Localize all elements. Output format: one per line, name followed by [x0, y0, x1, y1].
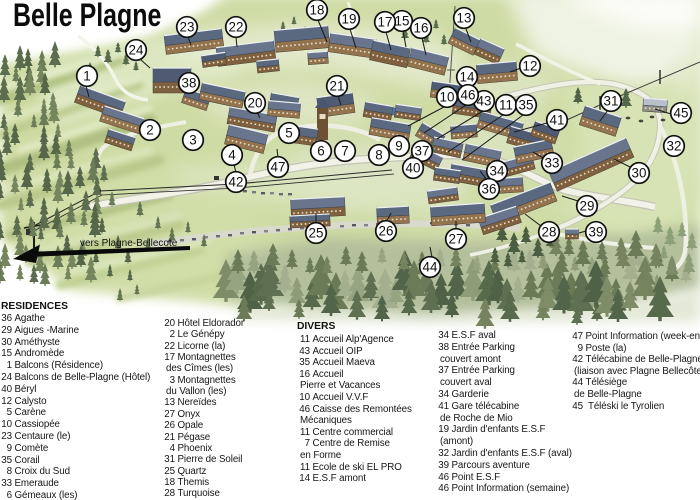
- svg-text:6: 6: [317, 144, 324, 159]
- svg-text:15: 15: [395, 14, 410, 29]
- svg-text:10: 10: [440, 90, 455, 105]
- svg-text:11: 11: [499, 98, 513, 113]
- svg-text:44: 44: [423, 260, 438, 275]
- svg-text:20: 20: [248, 96, 263, 111]
- svg-text:4: 4: [228, 148, 236, 163]
- svg-text:12: 12: [523, 59, 538, 74]
- svg-text:35: 35: [519, 98, 534, 113]
- svg-text:23: 23: [180, 20, 195, 35]
- svg-text:9: 9: [395, 139, 402, 154]
- svg-text:28: 28: [542, 225, 557, 240]
- svg-text:31: 31: [604, 94, 619, 109]
- svg-text:17: 17: [378, 15, 393, 30]
- svg-text:16: 16: [414, 21, 429, 36]
- svg-text:1: 1: [83, 69, 90, 84]
- svg-text:38: 38: [182, 76, 197, 91]
- svg-text:8: 8: [375, 148, 382, 163]
- svg-text:27: 27: [449, 232, 464, 247]
- svg-text:21: 21: [330, 79, 345, 94]
- svg-text:14: 14: [460, 70, 475, 85]
- svg-text:36: 36: [482, 182, 497, 197]
- svg-text:29: 29: [580, 199, 595, 214]
- svg-text:18: 18: [310, 3, 325, 18]
- svg-text:46: 46: [461, 88, 476, 103]
- svg-text:47: 47: [271, 160, 286, 175]
- svg-text:45: 45: [674, 106, 689, 121]
- svg-text:13: 13: [457, 11, 472, 26]
- svg-text:24: 24: [129, 43, 144, 58]
- svg-text:30: 30: [632, 166, 647, 181]
- svg-text:3: 3: [189, 133, 196, 148]
- svg-text:19: 19: [342, 12, 357, 27]
- svg-text:26: 26: [379, 224, 394, 239]
- svg-text:32: 32: [667, 139, 682, 154]
- svg-text:25: 25: [309, 226, 324, 241]
- svg-text:2: 2: [146, 123, 153, 138]
- svg-text:40: 40: [406, 161, 421, 176]
- svg-text:42: 42: [229, 175, 244, 190]
- svg-text:5: 5: [285, 126, 292, 141]
- svg-text:37: 37: [415, 144, 430, 159]
- svg-text:34: 34: [490, 164, 505, 179]
- svg-text:33: 33: [545, 156, 560, 171]
- svg-text:22: 22: [229, 20, 244, 35]
- svg-text:39: 39: [589, 225, 604, 240]
- svg-text:7: 7: [341, 144, 348, 159]
- svg-text:41: 41: [550, 113, 565, 128]
